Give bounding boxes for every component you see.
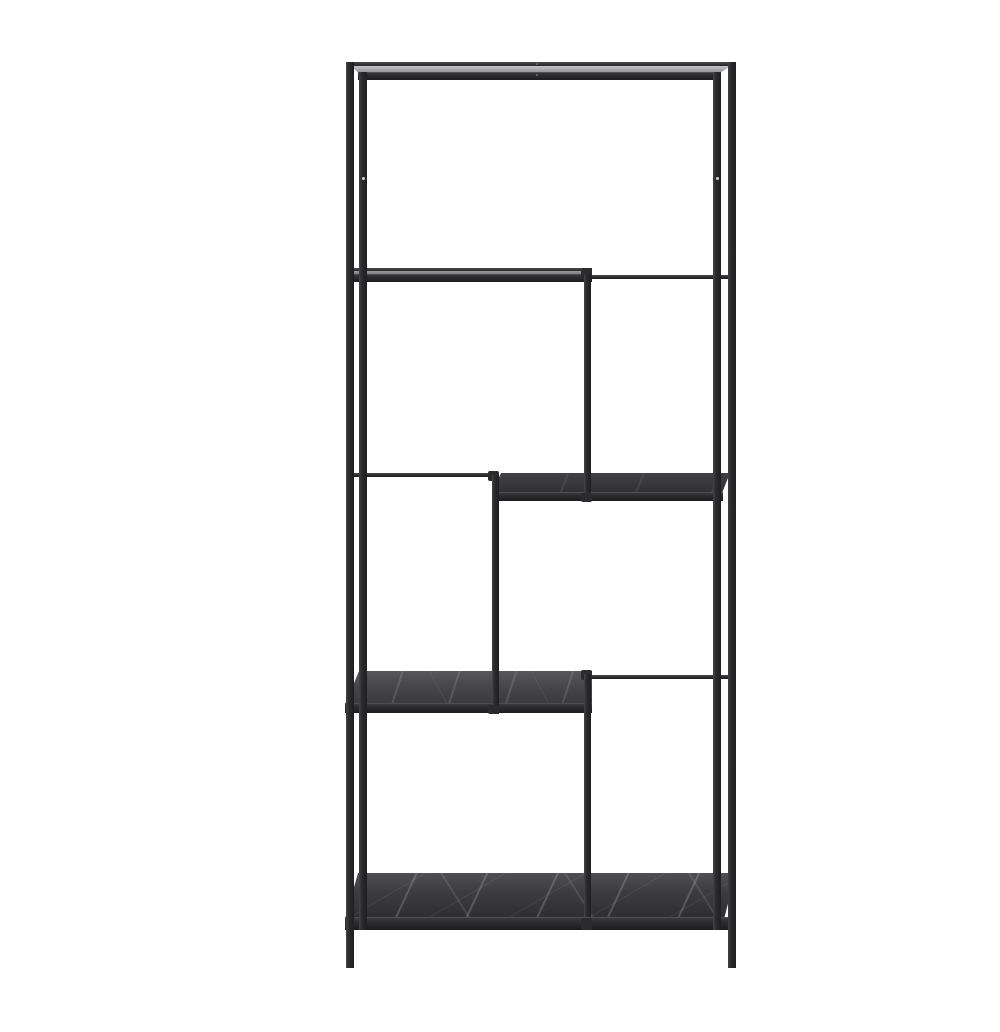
right-post-screw-dot <box>716 177 719 180</box>
front-left-post <box>359 72 367 930</box>
shelf4-side-rail <box>589 675 733 679</box>
shelf2-front-edge <box>350 274 592 282</box>
shelf3-left-rail <box>350 473 496 477</box>
middle-post-lower-joint <box>581 918 592 930</box>
middle-post-center-joint <box>488 705 499 714</box>
product-photo <box>40 16 1000 1016</box>
top-screw-dot-front <box>536 74 538 76</box>
shelf4-front-edge <box>345 703 592 713</box>
middle-post-upper <box>584 274 591 502</box>
back-right-post <box>728 62 736 968</box>
middle-post-center <box>492 475 499 714</box>
top-screw-dot-back <box>536 63 538 65</box>
shelf4-surface <box>345 671 592 705</box>
bottom-shelf-front-edge <box>345 917 734 930</box>
middle-post-upper-joint <box>581 493 592 502</box>
front-right-post <box>713 72 721 930</box>
bottom-shelf-surface <box>345 873 736 919</box>
shelf3-front-edge <box>492 492 723 501</box>
left-post-screw-dot <box>362 177 365 180</box>
shelf2-side-rail <box>589 275 733 279</box>
shelf3-surface <box>492 473 730 493</box>
top-shelf-front-edge <box>358 72 721 80</box>
middle-post-lower <box>584 674 591 930</box>
back-left-post <box>346 62 354 968</box>
